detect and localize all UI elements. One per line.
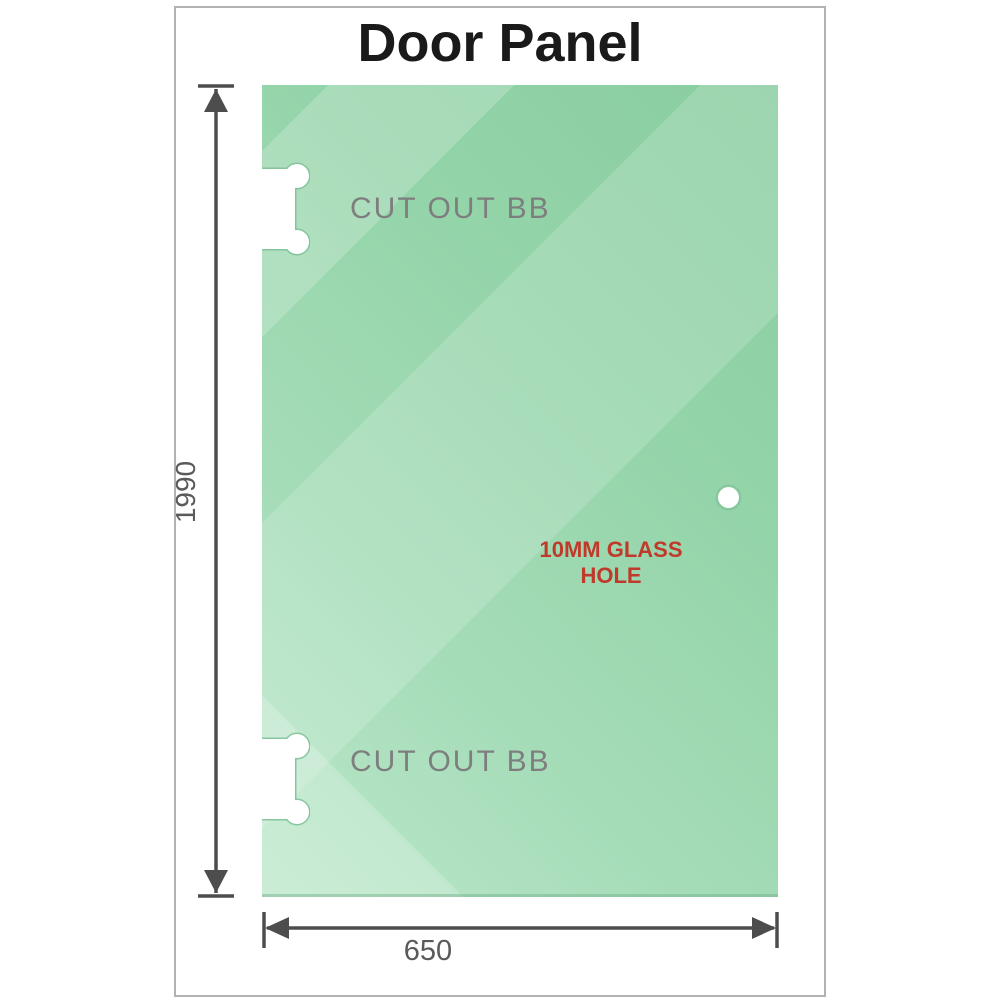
glass-hole-icon	[718, 487, 739, 508]
hinge-cutout-top-icon	[262, 160, 310, 260]
width-dimension-arrow-icon	[257, 908, 783, 954]
width-dimension-value: 650	[383, 936, 473, 966]
cutout-fill	[262, 164, 309, 254]
arrowhead-right-icon	[752, 917, 776, 939]
arrowhead-down-icon	[204, 870, 228, 893]
glass-hole-label: 10MM GLASS HOLE	[506, 537, 716, 563]
arrowhead-left-icon	[265, 917, 289, 939]
height-dimension-value: 1990	[171, 452, 201, 532]
cutout-top-label: CUT OUT BB	[350, 194, 590, 224]
page-title: Door Panel	[174, 14, 826, 74]
door-panel-diagram: Door Panel CUT OUT BB CUT OUT BB	[0, 0, 1000, 1000]
cutout-fill	[262, 734, 309, 824]
cutout-bottom-label: CUT OUT BB	[350, 747, 590, 777]
hinge-cutout-bottom-icon	[262, 730, 310, 830]
arrowhead-up-icon	[204, 89, 228, 112]
